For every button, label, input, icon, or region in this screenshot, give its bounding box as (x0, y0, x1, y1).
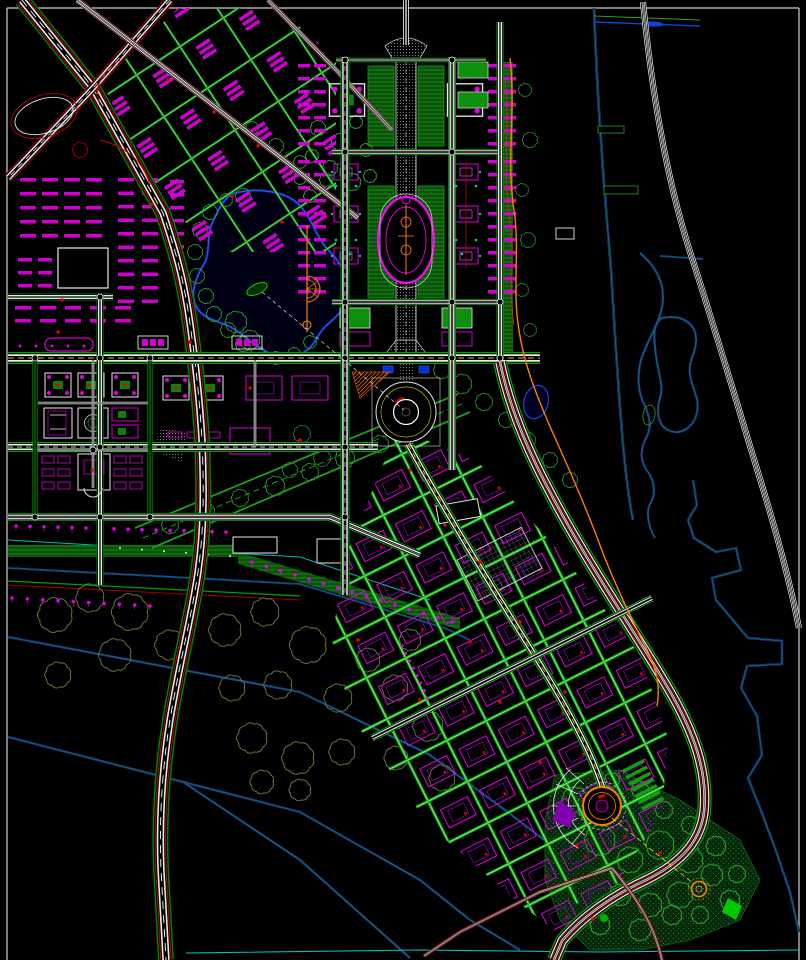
river-west-bank (594, 8, 633, 520)
slab-units (142, 339, 164, 346)
slab-units (236, 339, 258, 346)
mid-block (292, 376, 328, 400)
cad-viewport (0, 0, 806, 960)
sandbar-channel (639, 253, 663, 538)
magenta-block (442, 332, 472, 346)
waterfront-building (233, 537, 277, 553)
twin-core (118, 411, 126, 418)
public-building (58, 248, 108, 288)
stadium-track (45, 338, 93, 351)
east-green-plot (458, 92, 488, 108)
island (654, 317, 697, 432)
paired-units (114, 456, 142, 489)
tip-plaza-core (596, 800, 608, 812)
island-spur (660, 256, 703, 259)
south-shore (183, 782, 410, 958)
sub-median (399, 364, 413, 382)
east-green-plot (458, 62, 488, 78)
tree-dots (19, 345, 102, 348)
bottom-shoreline (186, 950, 800, 953)
shore-road-green (8, 581, 300, 596)
tip-green-dot (600, 914, 608, 922)
row-housing (20, 178, 102, 238)
river-crossing-road (643, 2, 799, 628)
green-block (442, 308, 472, 328)
ramp-island (72, 142, 87, 157)
bank-pier (604, 186, 638, 194)
mid-block-core (300, 382, 320, 394)
mid-block-core (254, 382, 274, 394)
paired-units (42, 456, 70, 489)
riverside-trees (515, 84, 537, 337)
blue-plot (419, 366, 429, 373)
cad-map-canvas[interactable] (0, 0, 806, 960)
diagonal-road-a (77, 0, 358, 218)
row-housing (15, 306, 131, 323)
axis-lawn-ne (418, 66, 444, 146)
twin-core (118, 428, 126, 435)
roundabout-outer (376, 382, 436, 442)
layer-district-civic (42, 373, 330, 490)
riverbank-building (556, 228, 574, 239)
courtyard-block (45, 373, 138, 397)
bank-pier (598, 126, 624, 133)
channel-3 (8, 737, 520, 950)
pond (520, 382, 552, 421)
